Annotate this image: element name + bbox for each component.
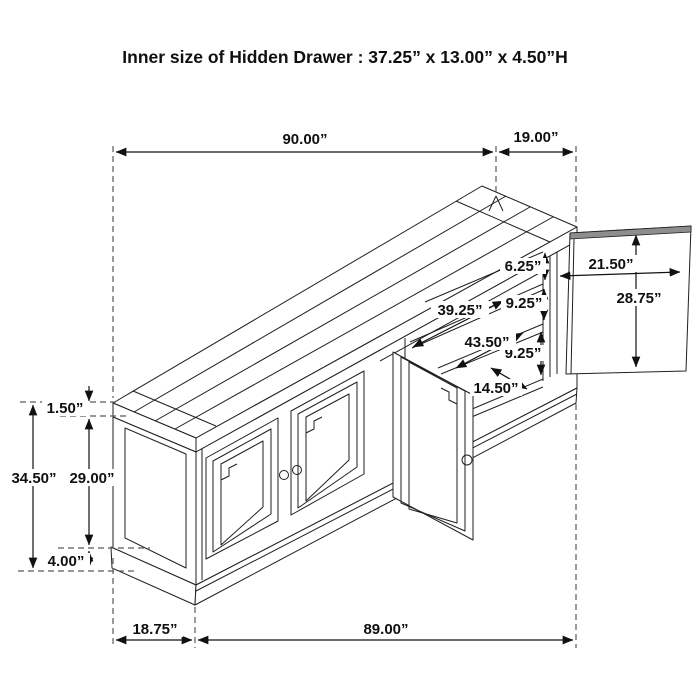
dim-shelf-length-lower-label: 43.50”	[464, 334, 509, 351]
dim-shelf-gap-top-label: 6.25”	[505, 258, 542, 275]
dim-interior-depth-label: 14.50”	[473, 380, 518, 397]
dim-top-depth-label: 19.00”	[513, 129, 558, 146]
dim-open-door-width-label: 21.50”	[588, 256, 633, 273]
cabinet	[111, 186, 691, 605]
dimension-diagram: 90.00” 19.00” 34.50” 1.50” 29.00” 4.00” …	[0, 0, 700, 700]
dim-open-door-height-label: 28.75”	[616, 290, 661, 307]
diagram-title: Inner size of Hidden Drawer : 37.25” x 1…	[122, 47, 567, 67]
dim-side-depth-label: 18.75”	[132, 621, 177, 638]
dim-shelf-length-upper-label: 39.25”	[437, 302, 482, 319]
dim-front-length-label: 89.00”	[363, 621, 408, 638]
dim-body-height-label: 29.00”	[69, 470, 114, 487]
dim-shelf-gap-middle-label: 9.25”	[506, 295, 543, 312]
dim-top-length-label: 90.00”	[282, 131, 327, 148]
dim-overall-height-label: 34.50”	[11, 470, 56, 487]
sideboard-drawing: 90.00” 19.00” 34.50” 1.50” 29.00” 4.00” …	[0, 0, 700, 700]
dim-base-height-label: 4.00”	[48, 553, 85, 570]
dim-top-thickness-label: 1.50”	[47, 400, 84, 417]
